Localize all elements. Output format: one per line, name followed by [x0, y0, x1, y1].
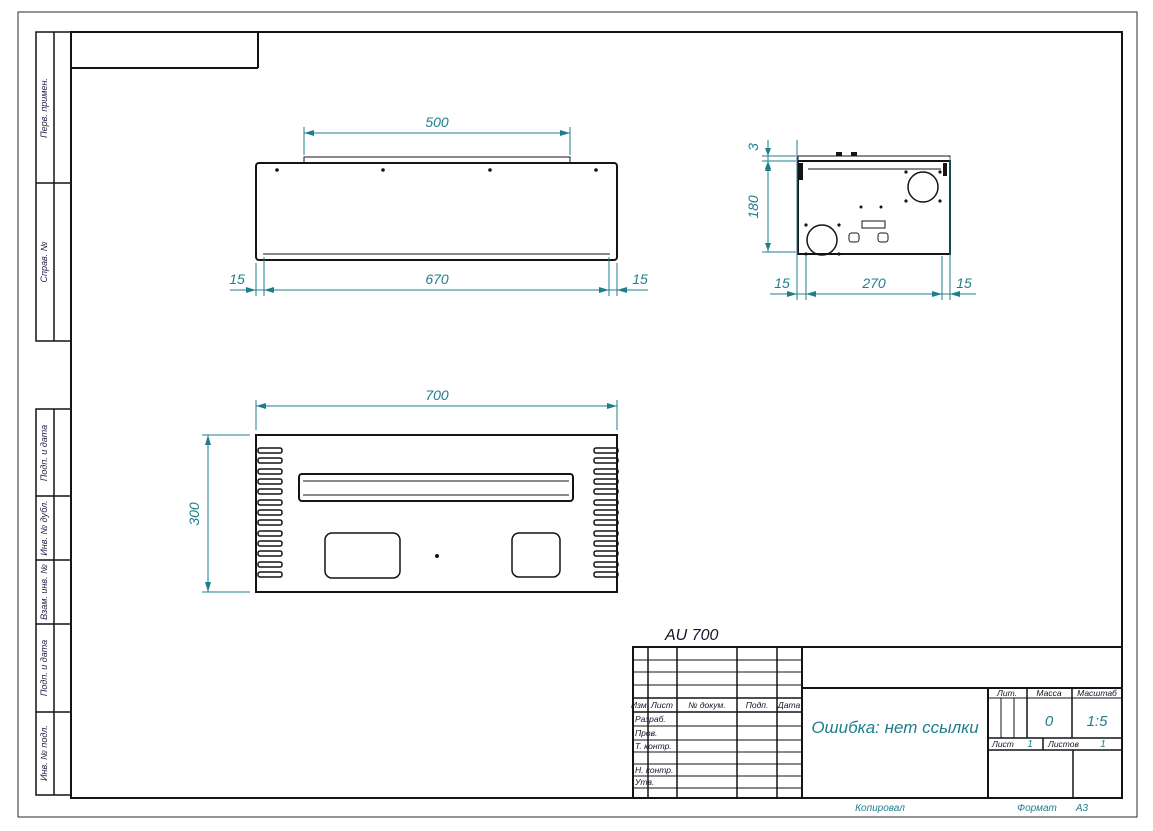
vent-slots-right [594, 448, 618, 577]
sheet-footer: Копировал Формат А3 [855, 803, 1088, 814]
front-view: 500 15 670 15 [229, 114, 648, 296]
col-list: Лист [650, 700, 673, 710]
dim-side-inner-270: 270 [861, 275, 886, 291]
scale-label: Масштаб [1077, 688, 1118, 698]
margin-label-perv-primen: Перв. примен. [39, 78, 49, 138]
sheet-frame [18, 12, 1137, 817]
front-dim-500: 500 [304, 114, 570, 155]
sheets-label: Листов [1047, 739, 1080, 749]
side-connector-hole-left [849, 233, 859, 242]
bottom-cutout-left [325, 533, 400, 578]
row-prov: Пров. [635, 728, 657, 738]
doc-title: Ошибка: нет ссылки [811, 718, 979, 737]
side-connector-hole-right [878, 233, 888, 242]
fan-cutout-bottom-left [804, 223, 840, 255]
vent-slots-left [258, 448, 282, 577]
front-dim-670: 15 670 15 [229, 257, 648, 296]
dim-bottom-height-300: 300 [186, 502, 202, 526]
margin-label-podp-data-2: Подп. и дата [39, 640, 49, 696]
bottom-body [256, 435, 617, 592]
margin-label-inv-dubl: Инв. № дубл. [39, 500, 49, 555]
bottom-view: 700 300 [186, 387, 618, 592]
drawing-canvas: Перв. примен. Справ. № Подп. и дата Инв.… [0, 0, 1153, 831]
mass-label: Масса [1036, 688, 1061, 698]
dim-side-height-180: 180 [745, 195, 761, 219]
side-slot [862, 221, 885, 228]
front-body [256, 163, 617, 260]
side-dim-180: 180 [745, 161, 796, 252]
mass-value: 0 [1045, 713, 1054, 730]
dim-side-right-15: 15 [956, 275, 972, 291]
title-block: Изм. Лист № докум. Подп. Дата Разраб. Пр… [631, 647, 1122, 798]
col-date: Дата [777, 700, 801, 710]
margin-columns: Перв. примен. Справ. № Подп. и дата Инв.… [36, 32, 71, 795]
format-value: А3 [1075, 803, 1089, 814]
side-view: 3 180 15 270 15 [745, 140, 976, 300]
margin-label-inv-podl: Инв. № подл. [39, 725, 49, 781]
row-nkontr: Н. контр. [635, 765, 673, 775]
col-podp: Подп. [746, 700, 769, 710]
copied-label: Копировал [855, 803, 905, 814]
col-doc-num: № докум. [688, 700, 725, 710]
side-body [798, 161, 950, 254]
bottom-dim-300: 300 [186, 435, 250, 592]
col-izm: Изм. [631, 700, 649, 710]
dim-front-flange-width: 500 [425, 114, 449, 130]
bottom-cutout-right [512, 533, 560, 577]
scale-value: 1:5 [1087, 713, 1109, 730]
bottom-center-hole [435, 554, 439, 558]
margin-label-vzam-inv: Взам. инв. № [39, 564, 49, 620]
format-label: Формат [1017, 803, 1057, 814]
dim-side-left-15: 15 [774, 275, 790, 291]
row-utv: Утв. [634, 777, 654, 787]
fan-cutout-top-right [904, 170, 941, 202]
dim-front-inner-670: 670 [425, 271, 449, 287]
margin-label-podp-data-1: Подп. и дата [39, 425, 49, 481]
drawing-sheet: Перв. примен. Справ. № Подп. и дата Инв.… [0, 0, 1153, 831]
side-dim-3: 3 [745, 140, 796, 178]
sheet-label: Лист [991, 739, 1014, 749]
dim-front-left-15: 15 [229, 271, 245, 287]
part-label: AU 700 [664, 627, 718, 644]
lit-label: Лит. [996, 688, 1017, 698]
dim-side-lid-3: 3 [745, 143, 761, 151]
bottom-dim-700: 700 [256, 387, 617, 430]
row-tkontr: Т. контр. [635, 741, 672, 751]
front-mount-holes [275, 168, 598, 172]
sheet-value: 1 [1027, 739, 1033, 750]
sheets-value: 1 [1100, 739, 1106, 750]
dim-bottom-width-700: 700 [425, 387, 449, 403]
margin-label-sprav-no: Справ. № [39, 241, 49, 282]
row-razrab: Разраб. [635, 714, 666, 724]
handle-slot [299, 474, 573, 501]
dim-front-right-15: 15 [632, 271, 648, 287]
